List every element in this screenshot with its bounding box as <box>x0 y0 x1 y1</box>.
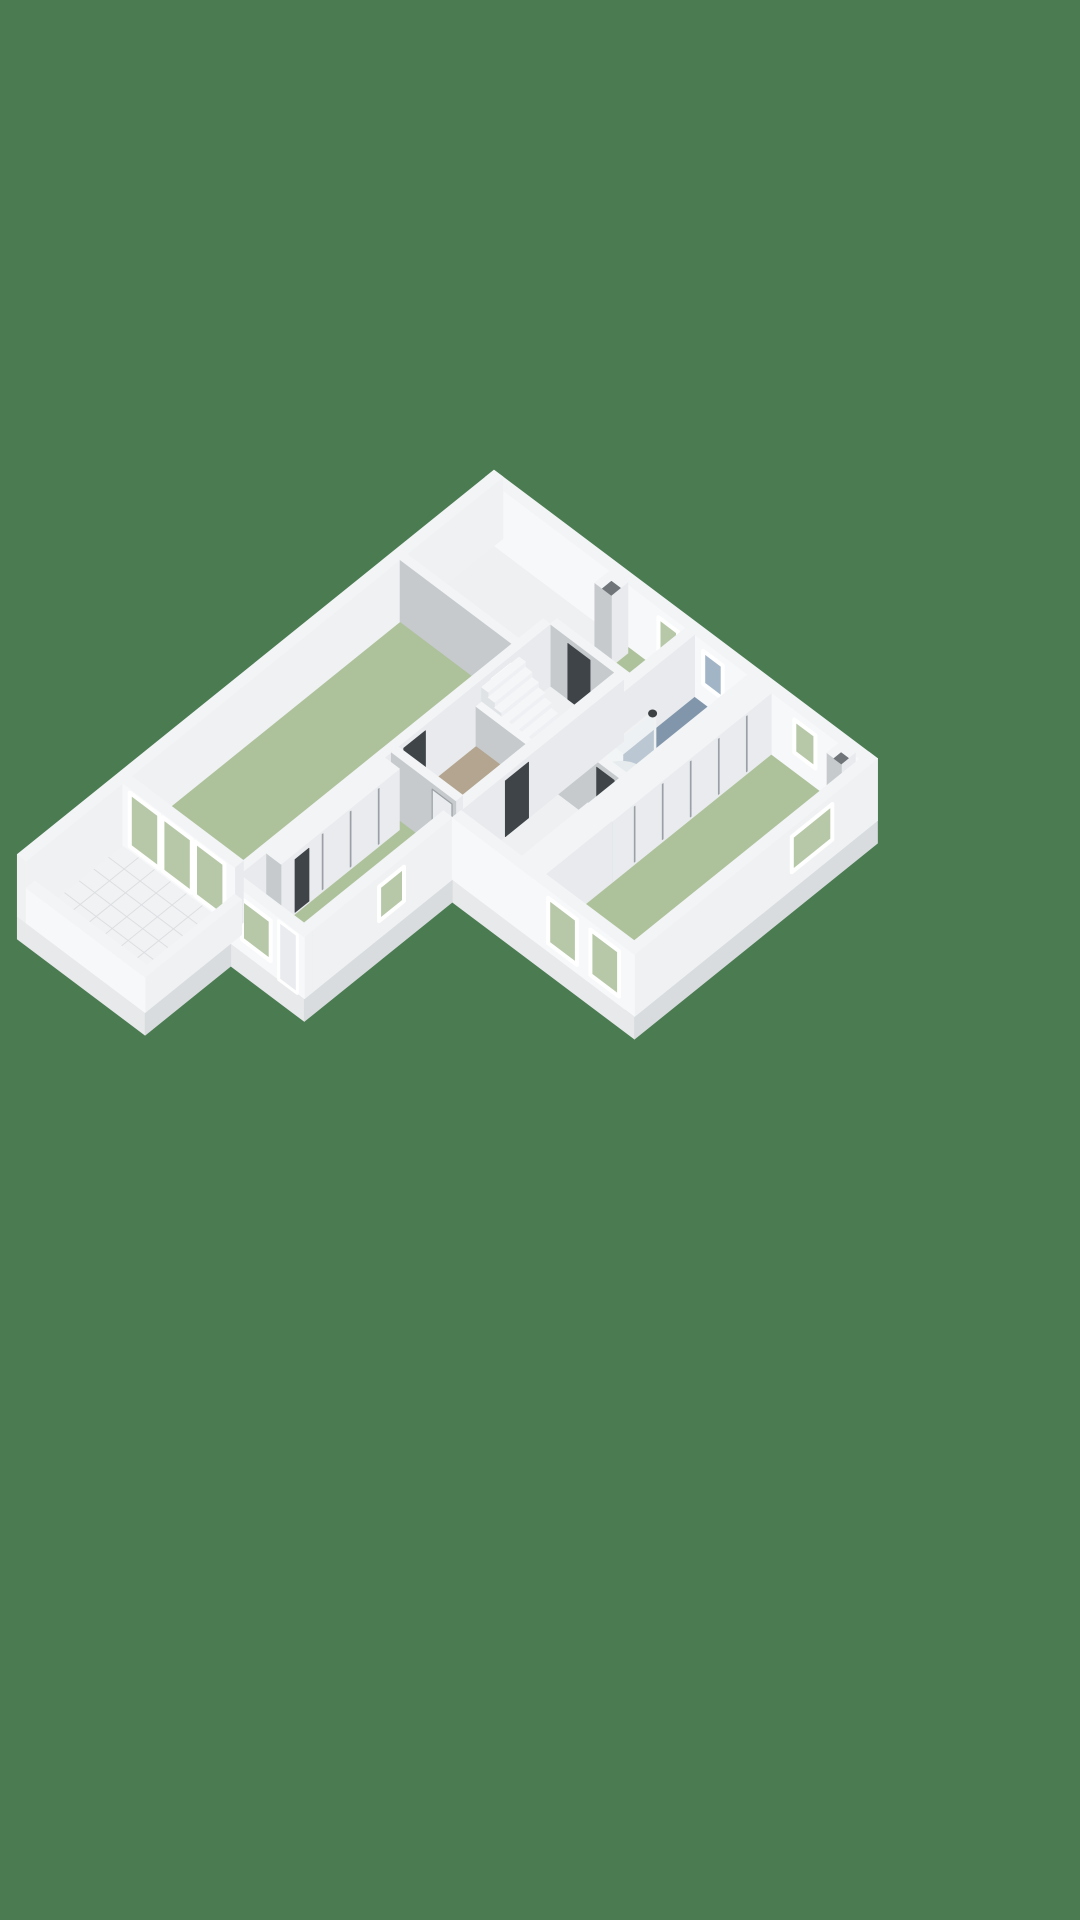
floorplan-page <box>0 0 1080 1920</box>
closet-door-gap <box>378 788 379 844</box>
closet-door-gap <box>718 738 719 794</box>
closet-door-gap <box>322 834 323 890</box>
bottom-room-front-wall <box>304 930 313 999</box>
shower-valve <box>648 709 657 717</box>
closet-door-gap <box>662 784 663 840</box>
closet-door-gap <box>746 716 747 772</box>
nw-facade-wall <box>17 854 26 923</box>
back-door <box>279 921 298 994</box>
closet-door-gap <box>634 806 635 862</box>
floorplan-3d-render <box>0 0 1080 1920</box>
closet-door-gap <box>350 811 351 867</box>
chimney <box>611 582 628 666</box>
closet-open-door <box>295 848 309 912</box>
right-wing-front-wall <box>635 947 644 1016</box>
closet-door-gap <box>690 761 691 817</box>
